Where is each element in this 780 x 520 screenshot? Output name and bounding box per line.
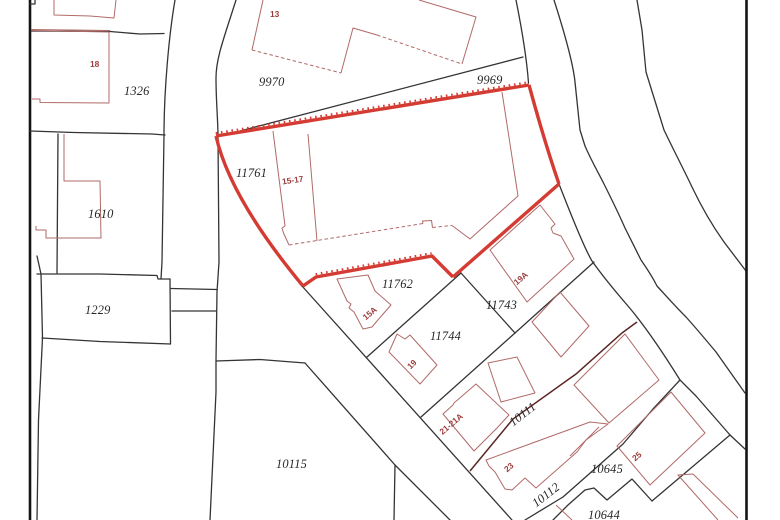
svg-text:13: 13: [270, 9, 280, 19]
svg-text:11762: 11762: [382, 277, 413, 291]
svg-text:9969: 9969: [477, 73, 503, 87]
svg-text:10115: 10115: [276, 457, 307, 471]
svg-text:1326: 1326: [124, 84, 150, 98]
svg-text:1229: 1229: [85, 303, 111, 317]
svg-text:10644: 10644: [588, 508, 620, 520]
svg-text:1610: 1610: [88, 207, 114, 221]
svg-text:11744: 11744: [430, 329, 461, 343]
svg-text:10645: 10645: [591, 462, 623, 476]
svg-text:18: 18: [90, 59, 100, 69]
svg-text:9970: 9970: [259, 75, 285, 89]
svg-text:11743: 11743: [486, 298, 517, 312]
svg-text:11761: 11761: [236, 166, 267, 180]
